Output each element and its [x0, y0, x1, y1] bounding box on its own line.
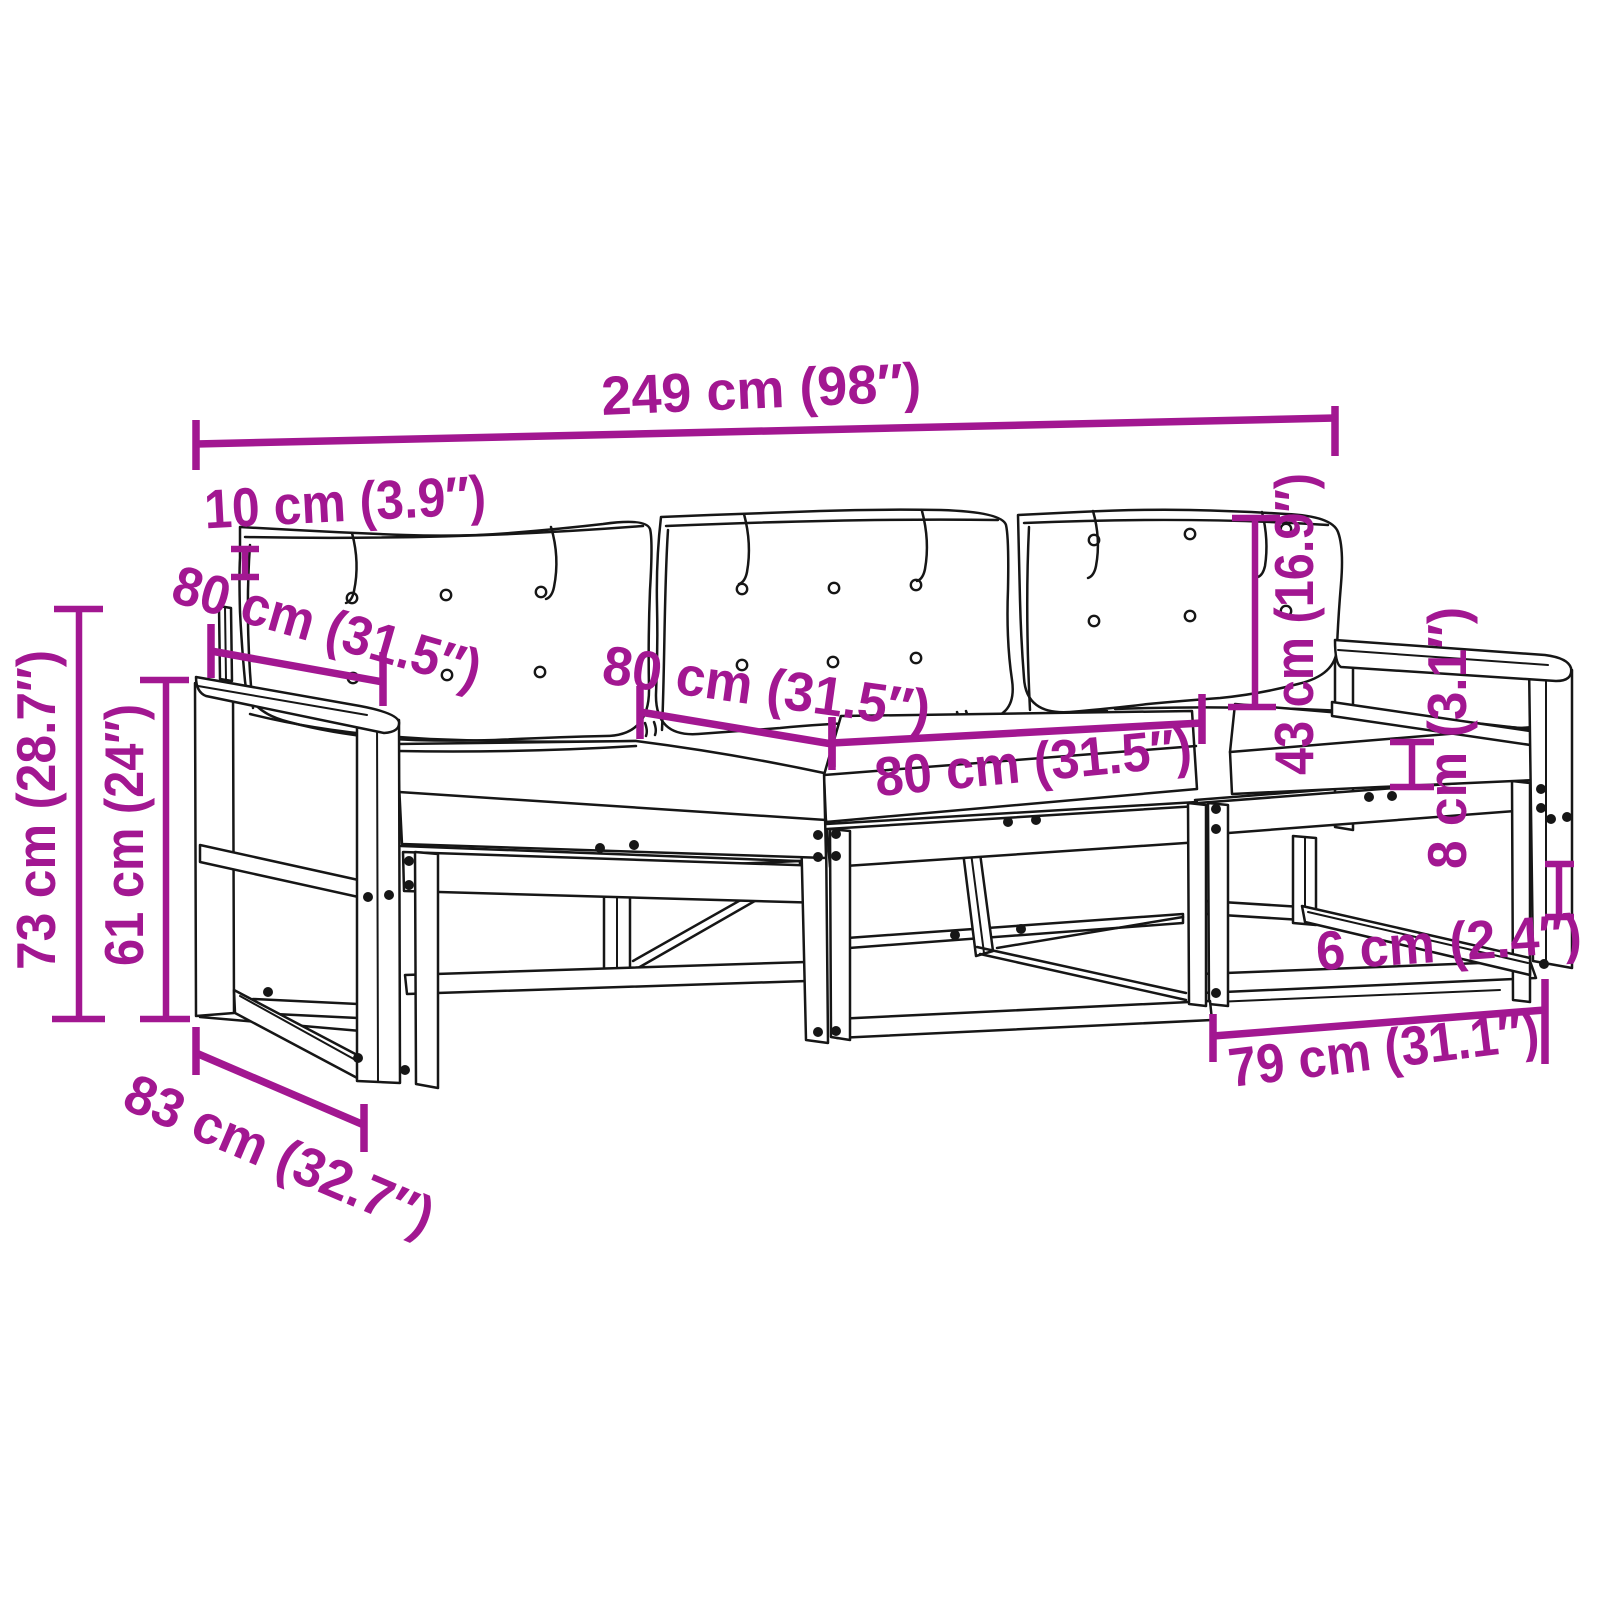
svg-text:61 cm (24″): 61 cm (24″) — [93, 704, 155, 966]
svg-text:43 cm (16.9″): 43 cm (16.9″) — [1263, 473, 1325, 775]
svg-text:8 cm (3.1″): 8 cm (3.1″) — [1416, 607, 1478, 869]
svg-text:73 cm (28.7″): 73 cm (28.7″) — [5, 650, 67, 970]
